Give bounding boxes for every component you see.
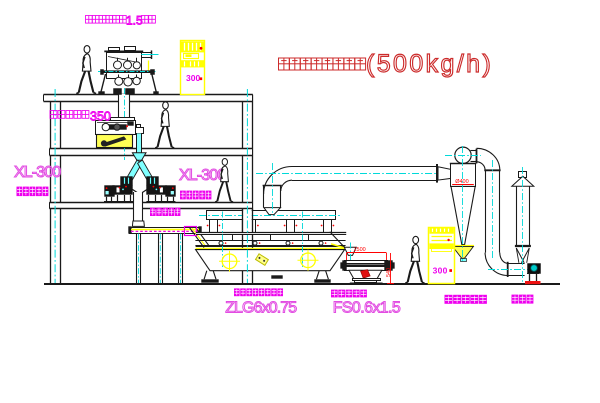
svg-text:300: 300 (186, 73, 200, 83)
svg-text:XL-300: XL-300 (179, 167, 226, 184)
svg-text:Ø400: Ø400 (455, 179, 468, 185)
svg-text:XL-300: XL-300 (14, 164, 61, 181)
svg-text:FS0.6x1.5: FS0.6x1.5 (333, 300, 401, 317)
svg-text:1.5: 1.5 (126, 13, 143, 27)
svg-text:(500kg/h): (500kg/h) (366, 50, 493, 78)
svg-text:540: 540 (386, 268, 392, 277)
svg-text:1500: 1500 (354, 247, 366, 253)
svg-text:ZLG6x0.75: ZLG6x0.75 (225, 300, 297, 317)
svg-text:300: 300 (433, 265, 448, 275)
svg-text:350: 350 (90, 109, 111, 123)
